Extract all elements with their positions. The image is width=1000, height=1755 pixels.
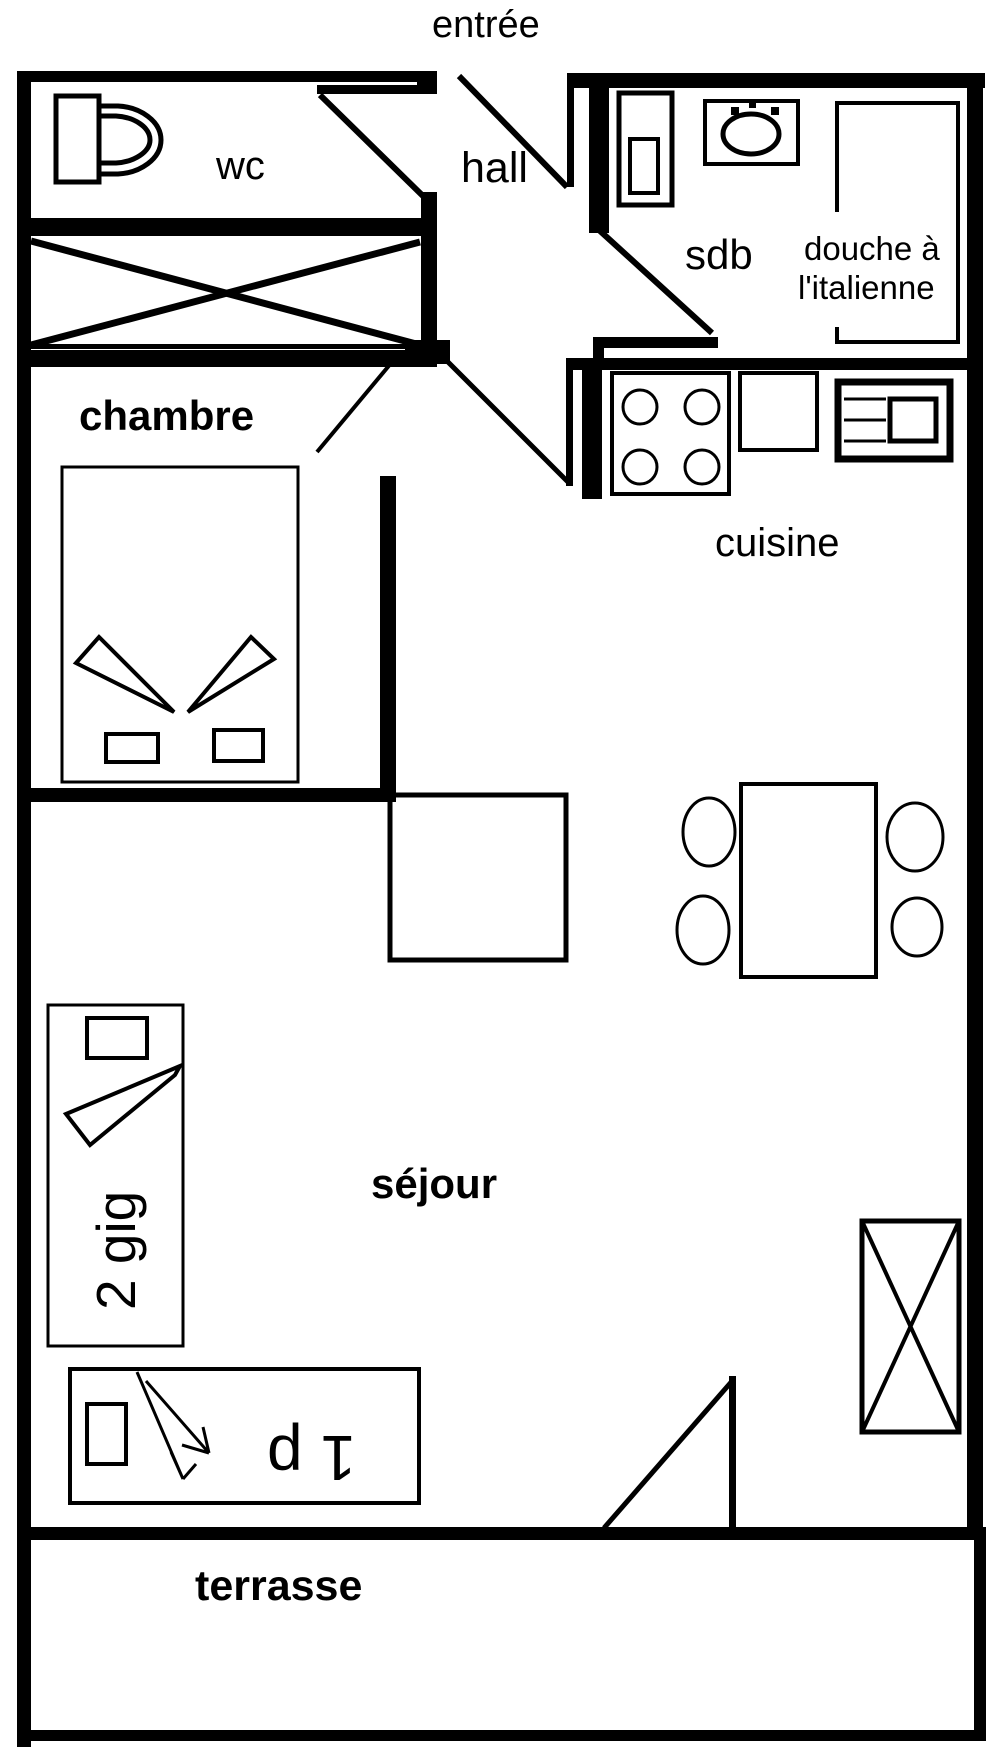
svg-text:douche à: douche à (804, 230, 940, 267)
svg-text:terrasse: terrasse (195, 1562, 362, 1610)
svg-text:2 gig: 2 gig (85, 1191, 147, 1310)
svg-text:1 p: 1 p (267, 1422, 356, 1494)
svg-text:cuisine: cuisine (715, 521, 840, 565)
svg-text:entrée: entrée (432, 4, 540, 46)
svg-text:wc: wc (215, 144, 265, 188)
svg-text:hall: hall (461, 144, 528, 192)
svg-text:séjour: séjour (371, 1160, 497, 1207)
svg-text:l'italienne: l'italienne (798, 269, 935, 306)
svg-text:sdb: sdb (685, 231, 753, 278)
svg-text:chambre: chambre (79, 392, 254, 439)
